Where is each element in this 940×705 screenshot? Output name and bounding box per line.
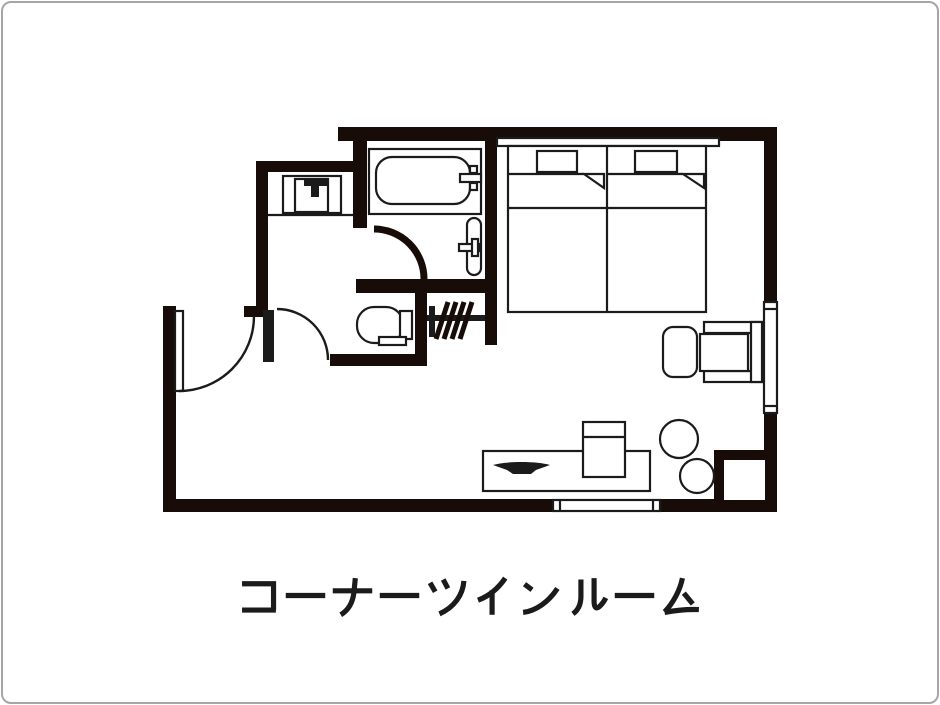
glyph-na bbox=[333, 578, 372, 615]
washroom bbox=[268, 176, 353, 215]
toilet-tank bbox=[400, 311, 412, 339]
glyph-n bbox=[523, 584, 557, 612]
wall-washroom-top bbox=[256, 161, 367, 172]
entrance-door-swing bbox=[179, 316, 254, 391]
wall-washroom-left bbox=[256, 161, 268, 315]
round-table-2 bbox=[680, 459, 714, 493]
toilet-door-swing bbox=[277, 309, 328, 360]
window-bottom bbox=[553, 500, 660, 511]
wall-bath-south bbox=[356, 279, 492, 293]
vanity-faucet-bar bbox=[304, 180, 327, 186]
floorplan-svg bbox=[0, 0, 940, 705]
pillar-core bbox=[724, 460, 765, 500]
closet bbox=[427, 302, 485, 339]
glyph-i bbox=[478, 578, 505, 615]
pillow-left bbox=[537, 151, 577, 172]
entrance-door-leaf bbox=[175, 311, 183, 391]
bath-tap-hot bbox=[470, 166, 477, 173]
plan-title-glyphs bbox=[242, 578, 699, 615]
ottoman bbox=[663, 327, 697, 377]
wall-bath-left bbox=[353, 127, 367, 228]
bath-tap-cold bbox=[470, 183, 477, 190]
round-table-1 bbox=[660, 420, 698, 458]
glyph-ru bbox=[573, 578, 606, 614]
floorplan-image: コーナーツインルーム bbox=[0, 0, 940, 705]
toilet-base bbox=[379, 337, 406, 345]
bath-faucet bbox=[460, 174, 481, 182]
armchair-seat bbox=[700, 334, 748, 371]
wall-right-upper bbox=[764, 127, 777, 303]
glyph-ko bbox=[242, 584, 276, 610]
bathroom-door-swing bbox=[374, 229, 424, 279]
toilet-door-leaf bbox=[263, 310, 274, 362]
beds bbox=[497, 138, 719, 312]
image-border bbox=[2, 2, 938, 703]
wall-bottom-left bbox=[163, 499, 560, 512]
window-right bbox=[764, 302, 777, 413]
basin-faucet-handle bbox=[472, 239, 478, 256]
wall-bedroom-left bbox=[485, 141, 497, 345]
bathtub bbox=[376, 157, 470, 204]
toilet-room bbox=[357, 307, 412, 345]
armchair-back bbox=[751, 322, 762, 382]
cabinet bbox=[583, 422, 625, 477]
headboard bbox=[497, 138, 719, 146]
hanger-bracket bbox=[429, 306, 435, 337]
wall-toilet-bottom bbox=[330, 354, 427, 366]
vanity-faucet-stem bbox=[311, 186, 319, 197]
pillow-right bbox=[635, 151, 677, 172]
unit-bath bbox=[369, 149, 481, 275]
glyph-tsu bbox=[430, 580, 464, 614]
glyph-mu bbox=[665, 578, 699, 612]
